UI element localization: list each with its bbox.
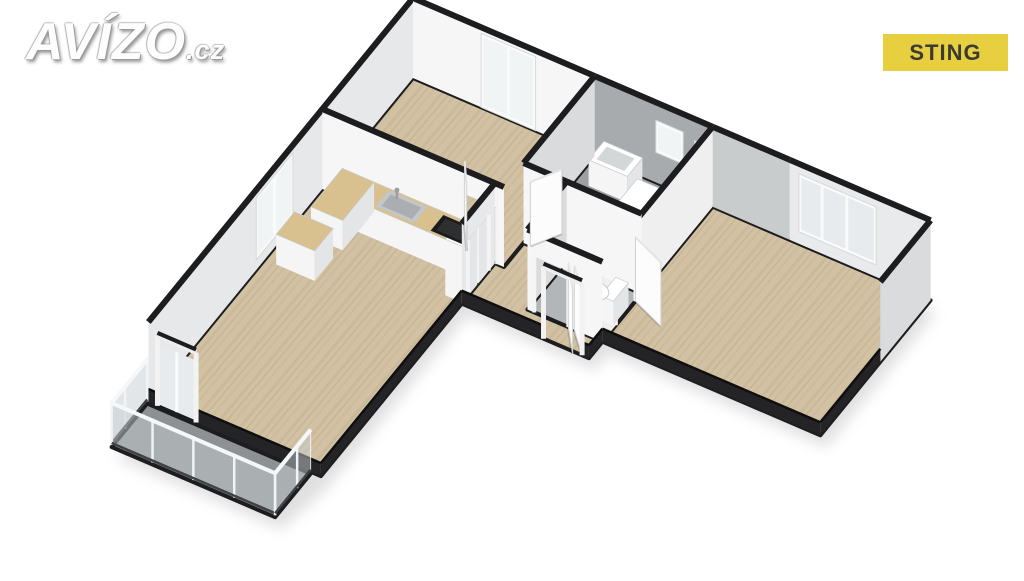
bathroom-door <box>530 170 562 246</box>
avizo-logo-text: AVÍZO <box>26 13 186 71</box>
avizo-logo-suffix: .cz <box>186 35 225 65</box>
floorplan-3d-render <box>0 0 1024 576</box>
sting-badge-label: STING <box>909 40 981 66</box>
bedroom1-door <box>465 161 467 251</box>
avizo-logo: AVÍZO.cz <box>26 12 225 72</box>
sting-badge: STING <box>883 34 1008 71</box>
